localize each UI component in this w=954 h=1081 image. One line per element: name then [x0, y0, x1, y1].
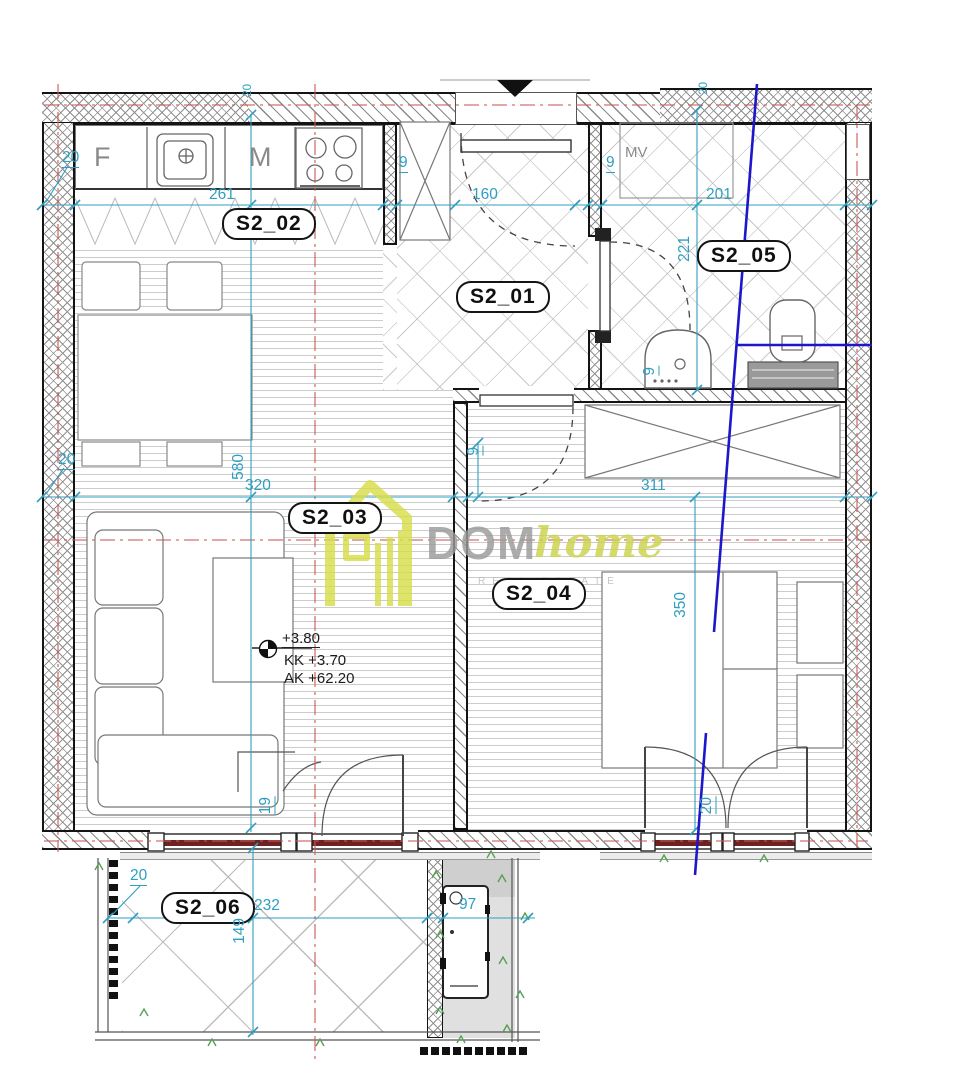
dim-232: 232 [254, 898, 280, 914]
dim-9-kwall: 9 [399, 155, 408, 173]
dim-20-axis-left: 20 [243, 84, 255, 97]
dim-149: 149 [232, 918, 248, 944]
vegetation-marks [95, 851, 768, 1046]
room-label-s2-04: S2_04 [492, 578, 586, 610]
dining-set [78, 262, 252, 466]
room-label-s2-02: S2_02 [222, 208, 316, 240]
stove [296, 128, 362, 188]
fridge-label: F [94, 142, 111, 173]
dim-311: 311 [641, 478, 666, 494]
dim-20-balcony: 20 [130, 868, 147, 886]
sofa [87, 512, 293, 815]
living-balcony-door-swing [322, 755, 403, 836]
dom-home-logo: DOM home REAL ESTATE [320, 474, 640, 604]
kitchen-m-label: M [249, 142, 272, 173]
dim-20-axis-right: 20 [699, 82, 711, 95]
logo-dom-text: DOM [426, 516, 536, 570]
dim-9-sink: 9 [642, 366, 660, 376]
washing-machine-label: MV [625, 144, 648, 161]
dim-350: 350 [673, 592, 689, 618]
windows [148, 833, 809, 851]
level-floor: +3.80 [282, 630, 320, 648]
bath-door-leaf [600, 241, 610, 331]
logo-home-text: home [534, 518, 664, 567]
dim-320: 320 [245, 478, 271, 494]
dim-97: 97 [459, 897, 476, 913]
logo-house-icon [322, 476, 414, 606]
room-label-s2-03: S2_03 [288, 502, 382, 534]
entrance-arrow [440, 80, 590, 97]
dim-221: 221 [677, 236, 693, 262]
floor-plan: DOM home REAL ESTATE S2_02 S2_01 S2_05 S… [0, 0, 954, 1081]
room-label-s2-05: S2_05 [697, 240, 791, 272]
dim-9-midwall: 9 [466, 446, 484, 456]
dim-201: 201 [706, 187, 732, 203]
dim-20-beddoor: 20 [699, 796, 717, 814]
dim-20-living: 20 [58, 452, 75, 470]
dim-9-hwall: 9 [606, 155, 615, 173]
level-kk: KK +3.70 [284, 652, 346, 669]
level-ak: AK +62.20 [284, 670, 354, 687]
dim-580: 580 [231, 454, 247, 480]
room-label-s2-01: S2_01 [456, 281, 550, 313]
dim-20-kitchen: 20 [62, 150, 79, 168]
bedroom-door-leaf [480, 395, 573, 406]
washer-slab [748, 362, 838, 388]
toilet [770, 300, 815, 362]
dim-160: 160 [472, 187, 498, 203]
dim-19-door: 19 [258, 796, 276, 814]
coffee-table [213, 558, 293, 682]
entrance-door-leaf [461, 140, 571, 152]
dim-261: 261 [209, 187, 235, 203]
